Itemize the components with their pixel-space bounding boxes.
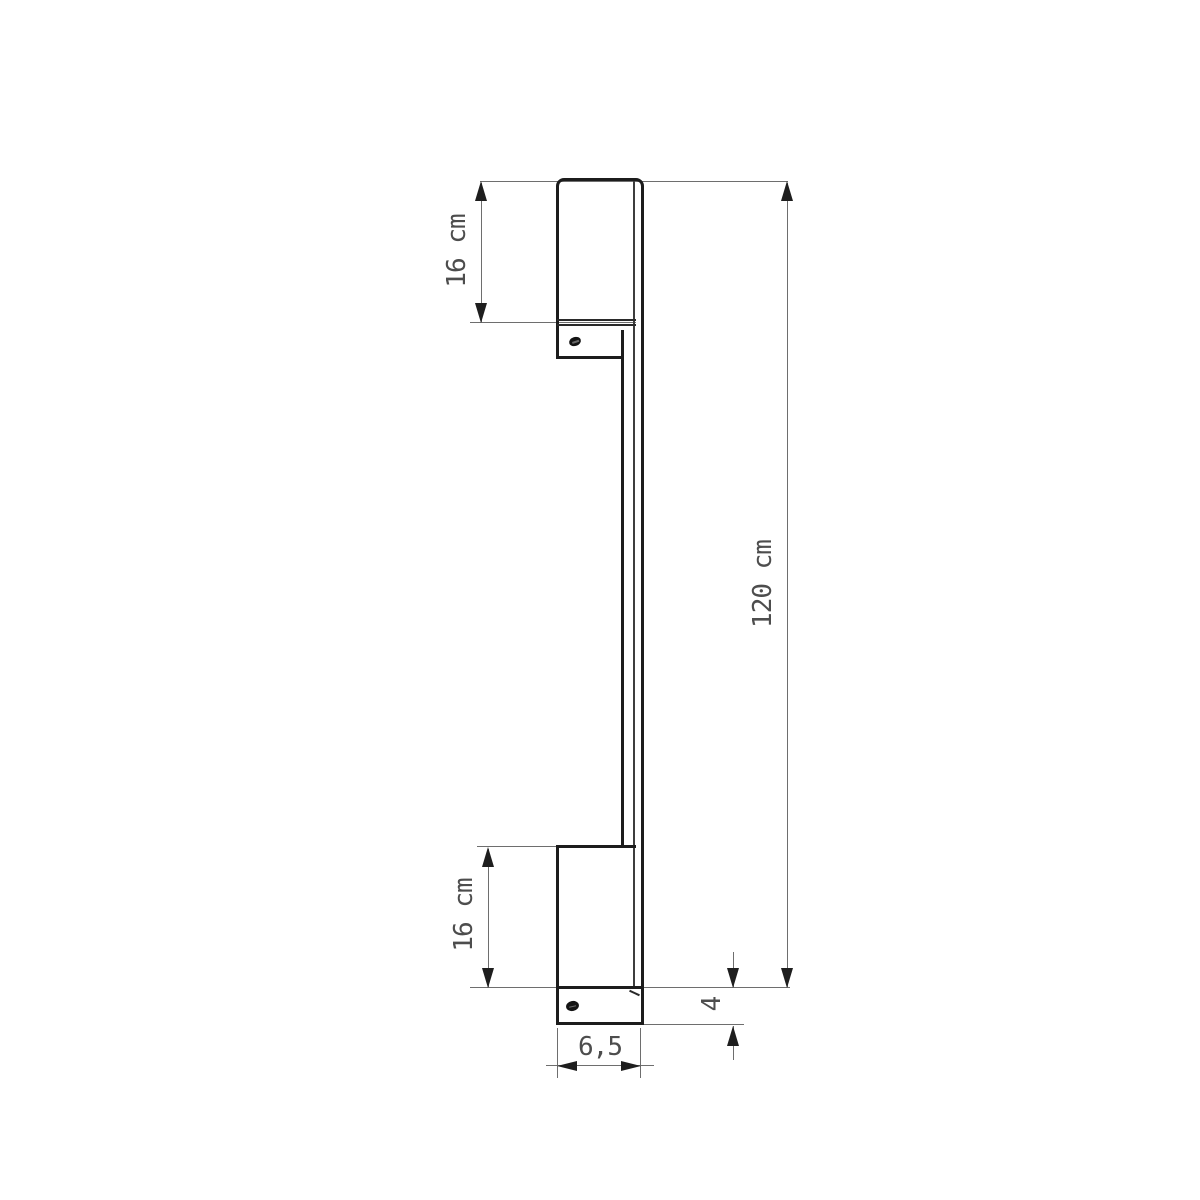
bottom-housing-top-edge [556,845,636,848]
top-housing-outline [556,178,644,326]
bottom-housing-bottom-edge [556,1022,644,1025]
top-housing-divider-line-1 [557,319,636,321]
arrowhead-down-icon [475,303,487,323]
dim-label-base-width: 6,5 [578,1032,622,1062]
arrowhead-down-icon [727,968,739,988]
arrowhead-left-icon [557,1061,577,1071]
bottom-housing-left-edge [556,845,559,1025]
dim-line-top-16cm [481,183,482,322]
arrowhead-down-icon [482,968,494,988]
bottom-housing-divider-line [556,986,644,989]
cable-detail-mark [629,990,640,996]
top-housing-divider-line-2 [557,324,636,326]
arrowhead-up-icon [727,1026,739,1046]
arrowhead-up-icon [781,181,793,201]
lamp-bar-left-edge [621,330,624,847]
lamp-bar-right-edge [641,326,644,1025]
dim-label-bottom-section: 16 cm [449,878,479,951]
dim-label-top-section: 16 cm [442,214,472,287]
bottom-mounting-screw-icon [565,1000,580,1012]
technical-drawing-canvas: 16 cm 120 cm 16 cm 6,5 4 [0,0,1200,1200]
top-bracket-bottom-edge [556,356,624,359]
ext-line-4-bottom [644,1024,744,1025]
arrowhead-down-icon [781,968,793,988]
top-mounting-screw-icon [568,335,582,347]
top-bracket-left-edge [556,326,559,359]
arrowhead-up-icon [475,181,487,201]
dim-label-base-height: 4 [697,997,727,1012]
dim-label-overall-length: 120 cm [748,540,778,628]
dim-line-bottom-16cm [488,849,489,987]
arrowhead-right-icon [621,1061,641,1071]
arrowhead-up-icon [482,847,494,867]
dim-line-120cm [787,183,788,987]
